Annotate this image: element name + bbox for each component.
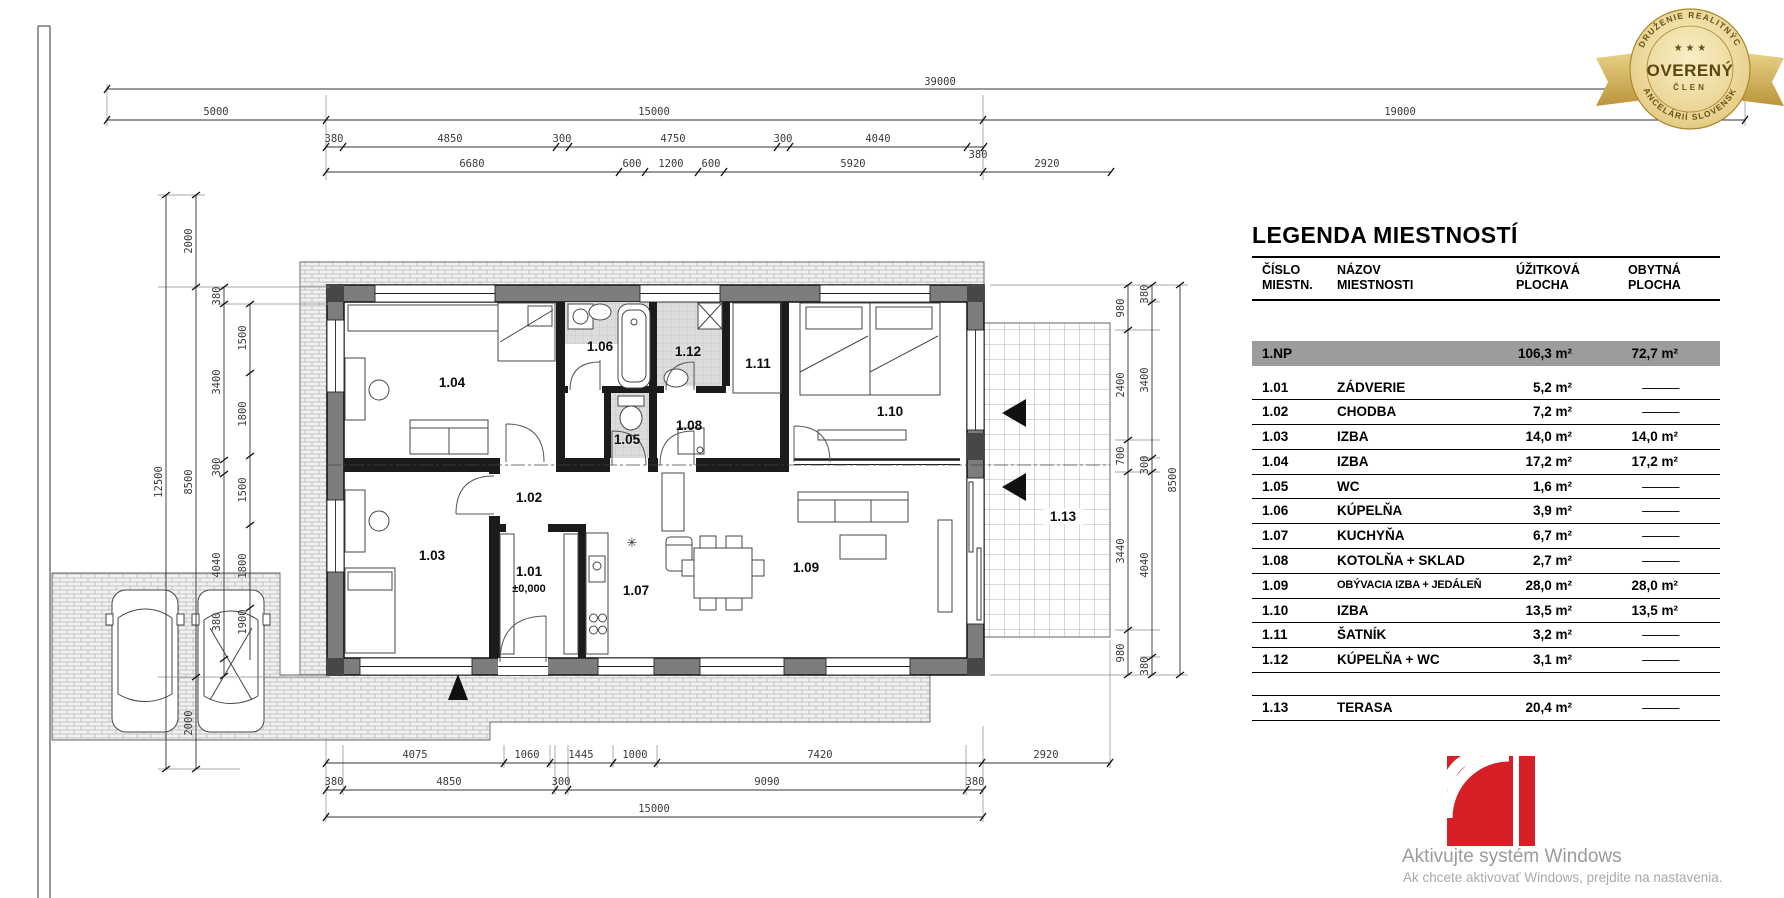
room-label-1-09: 1.09 <box>793 560 819 575</box>
sliding-partition <box>794 460 960 465</box>
svg-text:380: 380 <box>1139 657 1151 676</box>
svg-text:4040: 4040 <box>1139 552 1151 577</box>
svg-text:300: 300 <box>552 776 571 788</box>
svg-text:300: 300 <box>1139 456 1151 475</box>
svg-text:2920: 2920 <box>1033 749 1058 761</box>
room-label-1-11: 1.11 <box>745 356 771 371</box>
level-mark: ±0,000 <box>512 583 546 595</box>
svg-text:6680: 6680 <box>459 158 484 170</box>
room-label-1-13: 1.13 <box>1050 509 1077 524</box>
legend-title: LEGENDA MIESTNOSTÍ <box>1252 222 1720 249</box>
svg-text:3440: 3440 <box>1115 538 1127 563</box>
svg-text:19000: 19000 <box>1384 106 1416 118</box>
svg-text:2000: 2000 <box>183 228 195 253</box>
badge-stars-icon: ★ ★ ★ <box>1674 43 1706 54</box>
svg-text:980: 980 <box>1115 299 1127 318</box>
summary-row: 1.NP 106,3 m² 72,7 m² <box>1252 341 1720 366</box>
svg-text:300: 300 <box>774 133 793 145</box>
terrace <box>984 323 1110 637</box>
svg-text:1200: 1200 <box>658 158 683 170</box>
svg-text:4075: 4075 <box>402 749 427 761</box>
svg-text:1500: 1500 <box>237 477 249 502</box>
svg-text:380: 380 <box>211 287 223 306</box>
svg-text:4750: 4750 <box>660 133 685 145</box>
svg-text:1445: 1445 <box>568 749 593 761</box>
room-label-1-12: 1.12 <box>675 344 701 359</box>
table-row: 1.05WC 1,6 m²——— <box>1252 475 1720 500</box>
table-row: 1.11ŠATNÍK 3,2 m²——— <box>1252 623 1720 648</box>
certification-badge: ZDRUŽENIE REALITNÝCH KANCELÁRIÍ SLOVENSK… <box>1596 2 1784 148</box>
windows-activation-watermark: Aktivujte systém Windows <box>1402 846 1622 868</box>
svg-text:2400: 2400 <box>1115 372 1127 397</box>
svg-text:700: 700 <box>1115 447 1127 466</box>
svg-text:380: 380 <box>211 613 223 632</box>
svg-text:380: 380 <box>969 149 988 161</box>
table-row: 1.10IZBA 13,5 m²13,5 m² <box>1252 599 1720 624</box>
svg-text:1800: 1800 <box>237 553 249 578</box>
room-label-1-01: 1.01 <box>516 564 543 579</box>
svg-text:380: 380 <box>325 776 344 788</box>
room-label-1-06: 1.06 <box>587 339 614 354</box>
car-top-view <box>192 590 270 732</box>
header-usable-area: ÚŽITKOVÁPLOCHA <box>1502 263 1572 293</box>
svg-text:✳: ✳ <box>627 535 638 550</box>
svg-text:15000: 15000 <box>638 106 670 118</box>
table-row: 1.12KÚPELŇA + WC 3,1 m²——— <box>1252 648 1720 673</box>
table-row: 1.08KOTOLŇA + SKLAD 2,7 m²——— <box>1252 549 1720 574</box>
room-label-1-04: 1.04 <box>439 375 466 390</box>
svg-text:4040: 4040 <box>211 552 223 577</box>
header-living-area: OBYTNÁPLOCHA <box>1572 263 1678 293</box>
svg-text:2000: 2000 <box>183 710 195 735</box>
svg-text:7420: 7420 <box>807 749 832 761</box>
legend-header: ČÍSLOMIESTN. NÁZOVMIESTNOSTI ÚŽITKOVÁPLO… <box>1252 258 1720 299</box>
svg-text:39000: 39000 <box>924 76 956 88</box>
table-row: 1.09OBÝVACIA IZBA + JEDÁLEŇ 28,0 m²28,0 … <box>1252 574 1720 599</box>
svg-text:3400: 3400 <box>1139 367 1151 392</box>
table-row: 1.01ZÁDVERIE 5,2 m²——— <box>1252 376 1720 401</box>
header-number: ČÍSLOMIESTN. <box>1262 263 1337 293</box>
room-label-1-08: 1.08 <box>676 418 703 433</box>
windows-activation-hint: Ak chcete aktivovať Windows, prejdite na… <box>1403 870 1722 885</box>
room-label-1-03: 1.03 <box>419 548 446 563</box>
table-row: 1.07KUCHYŇA 6,7 m²——— <box>1252 524 1720 549</box>
table-row-terrace: 1.13TERASA 20,4 m²——— <box>1252 695 1720 721</box>
svg-text:5000: 5000 <box>203 106 228 118</box>
table-row: 1.02CHODBA 7,2 m²——— <box>1252 400 1720 425</box>
svg-text:12500: 12500 <box>153 466 165 498</box>
room-label-1-02: 1.02 <box>516 490 542 505</box>
svg-text:380: 380 <box>325 133 344 145</box>
svg-text:9090: 9090 <box>754 776 779 788</box>
table-row: 1.04IZBA 17,2 m²17,2 m² <box>1252 450 1720 475</box>
svg-text:4040: 4040 <box>865 133 890 145</box>
svg-text:1800: 1800 <box>237 401 249 426</box>
badge-title: OVERENÝ <box>1647 61 1734 80</box>
svg-text:380: 380 <box>966 776 985 788</box>
agency-logo-icon <box>1447 756 1539 848</box>
svg-text:1000: 1000 <box>622 749 647 761</box>
badge-member: ČLEN <box>1673 83 1707 92</box>
svg-text:4850: 4850 <box>436 776 461 788</box>
svg-text:1500: 1500 <box>237 325 249 350</box>
svg-text:980: 980 <box>1115 644 1127 663</box>
car-top-view <box>106 590 184 732</box>
sheet-border <box>38 26 50 898</box>
svg-text:300: 300 <box>211 458 223 477</box>
svg-text:1900: 1900 <box>237 609 249 634</box>
svg-text:1060: 1060 <box>514 749 539 761</box>
svg-text:600: 600 <box>702 158 721 170</box>
svg-text:2920: 2920 <box>1034 158 1059 170</box>
svg-text:3400: 3400 <box>211 369 223 394</box>
svg-text:15000: 15000 <box>638 803 670 815</box>
furniture: ✳ <box>345 303 952 654</box>
svg-text:300: 300 <box>553 133 572 145</box>
header-name: NÁZOVMIESTNOSTI <box>1337 263 1502 293</box>
room-legend: LEGENDA MIESTNOSTÍ ČÍSLOMIESTN. NÁZOVMIE… <box>1252 222 1720 721</box>
svg-text:380: 380 <box>1139 285 1151 304</box>
svg-text:8500: 8500 <box>1167 467 1179 492</box>
room-label-1-07: 1.07 <box>623 583 649 598</box>
svg-text:4850: 4850 <box>437 133 462 145</box>
svg-text:600: 600 <box>623 158 642 170</box>
table-row: 1.03IZBA 14,0 m²14,0 m² <box>1252 425 1720 450</box>
svg-text:5920: 5920 <box>840 158 865 170</box>
svg-text:8500: 8500 <box>183 469 195 494</box>
room-label-1-05: 1.05 <box>614 432 641 447</box>
room-label-1-10: 1.10 <box>877 404 903 419</box>
table-row: 1.06KÚPELŇA 3,9 m²——— <box>1252 499 1720 524</box>
